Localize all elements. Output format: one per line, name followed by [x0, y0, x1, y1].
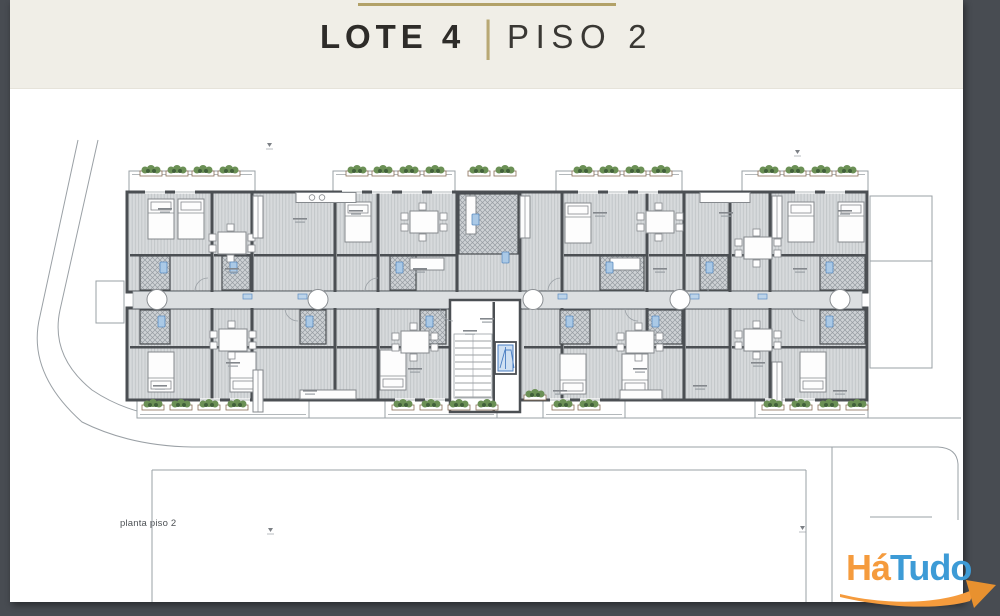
hatudo-watermark: HáTudo: [846, 550, 1000, 610]
stair-elevator-core: [450, 300, 520, 412]
logo-swoosh-arrow-icon: [838, 574, 1000, 616]
floor-plan-drawing: [0, 0, 1000, 615]
